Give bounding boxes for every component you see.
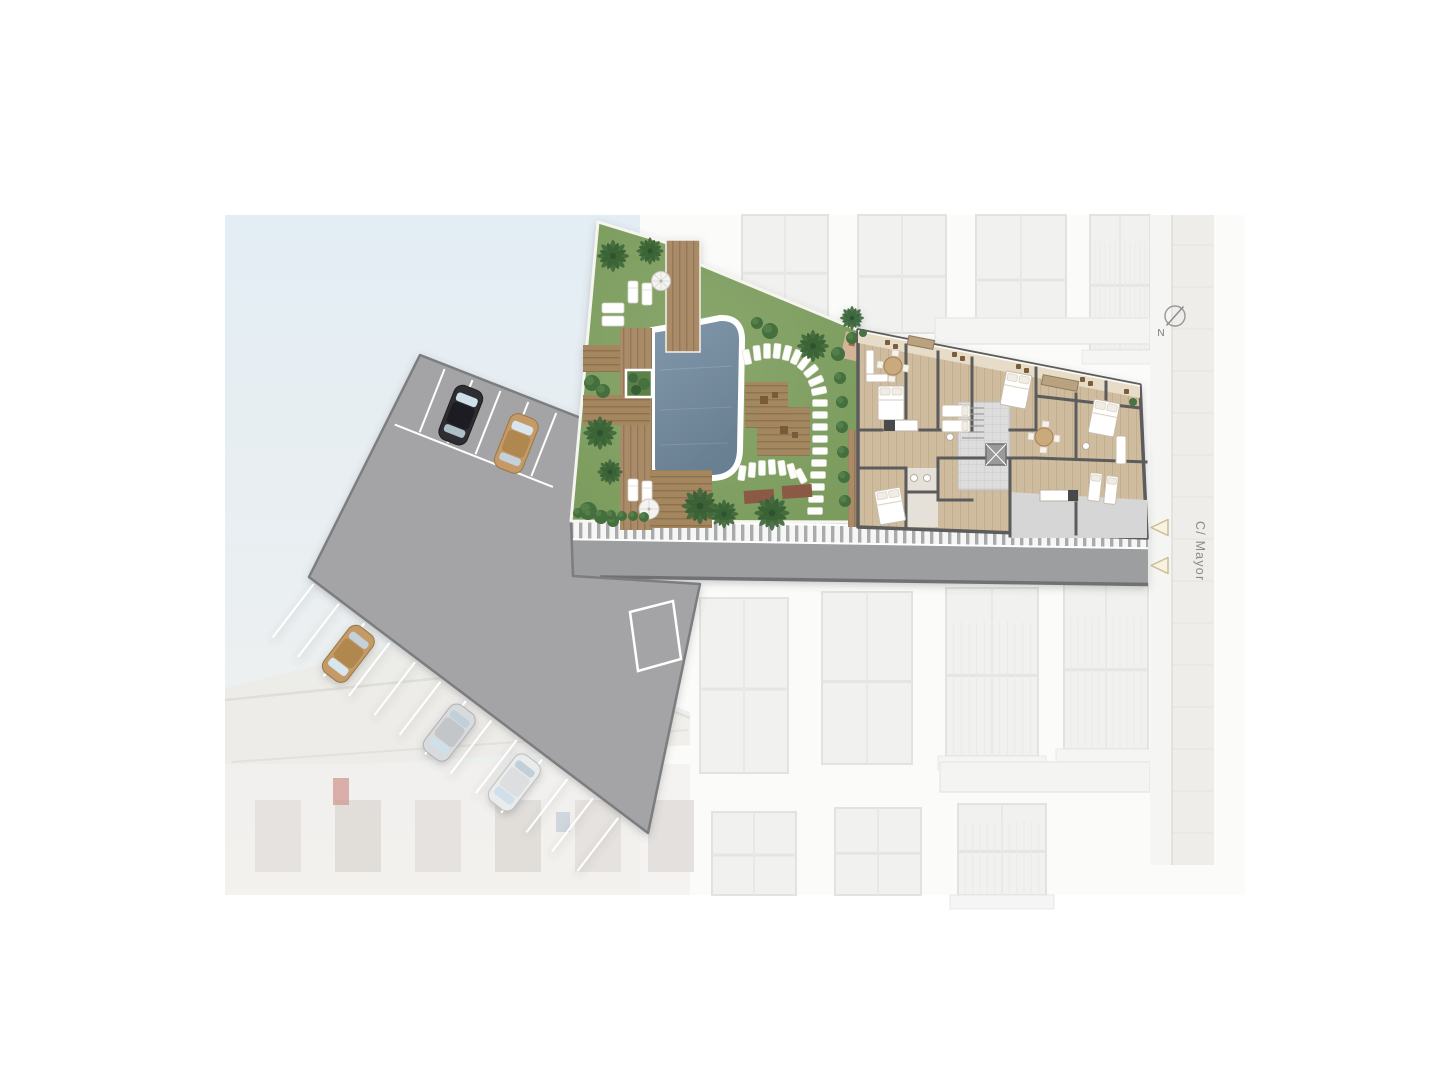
facade-window — [858, 215, 946, 333]
facade-window — [835, 808, 921, 895]
house-blue-detail — [556, 812, 570, 832]
facade-window — [938, 588, 1046, 770]
house-red-sign — [333, 778, 349, 805]
site-plan-canvas: N C/ Mayor — [0, 0, 1440, 1080]
elevator — [986, 444, 1006, 465]
terrace-plant — [859, 329, 867, 337]
facade-window — [700, 598, 788, 773]
planter — [626, 370, 652, 397]
facade-window — [950, 804, 1054, 909]
street-name-label: C/ Mayor — [1193, 521, 1207, 581]
facade-window — [712, 812, 796, 895]
terrace-plant — [1129, 398, 1137, 406]
facade-window — [822, 592, 912, 764]
facade-window — [1056, 584, 1156, 763]
site-plan-page: N C/ Mayor — [0, 0, 1440, 1080]
compass-north-label: N — [1157, 328, 1164, 339]
